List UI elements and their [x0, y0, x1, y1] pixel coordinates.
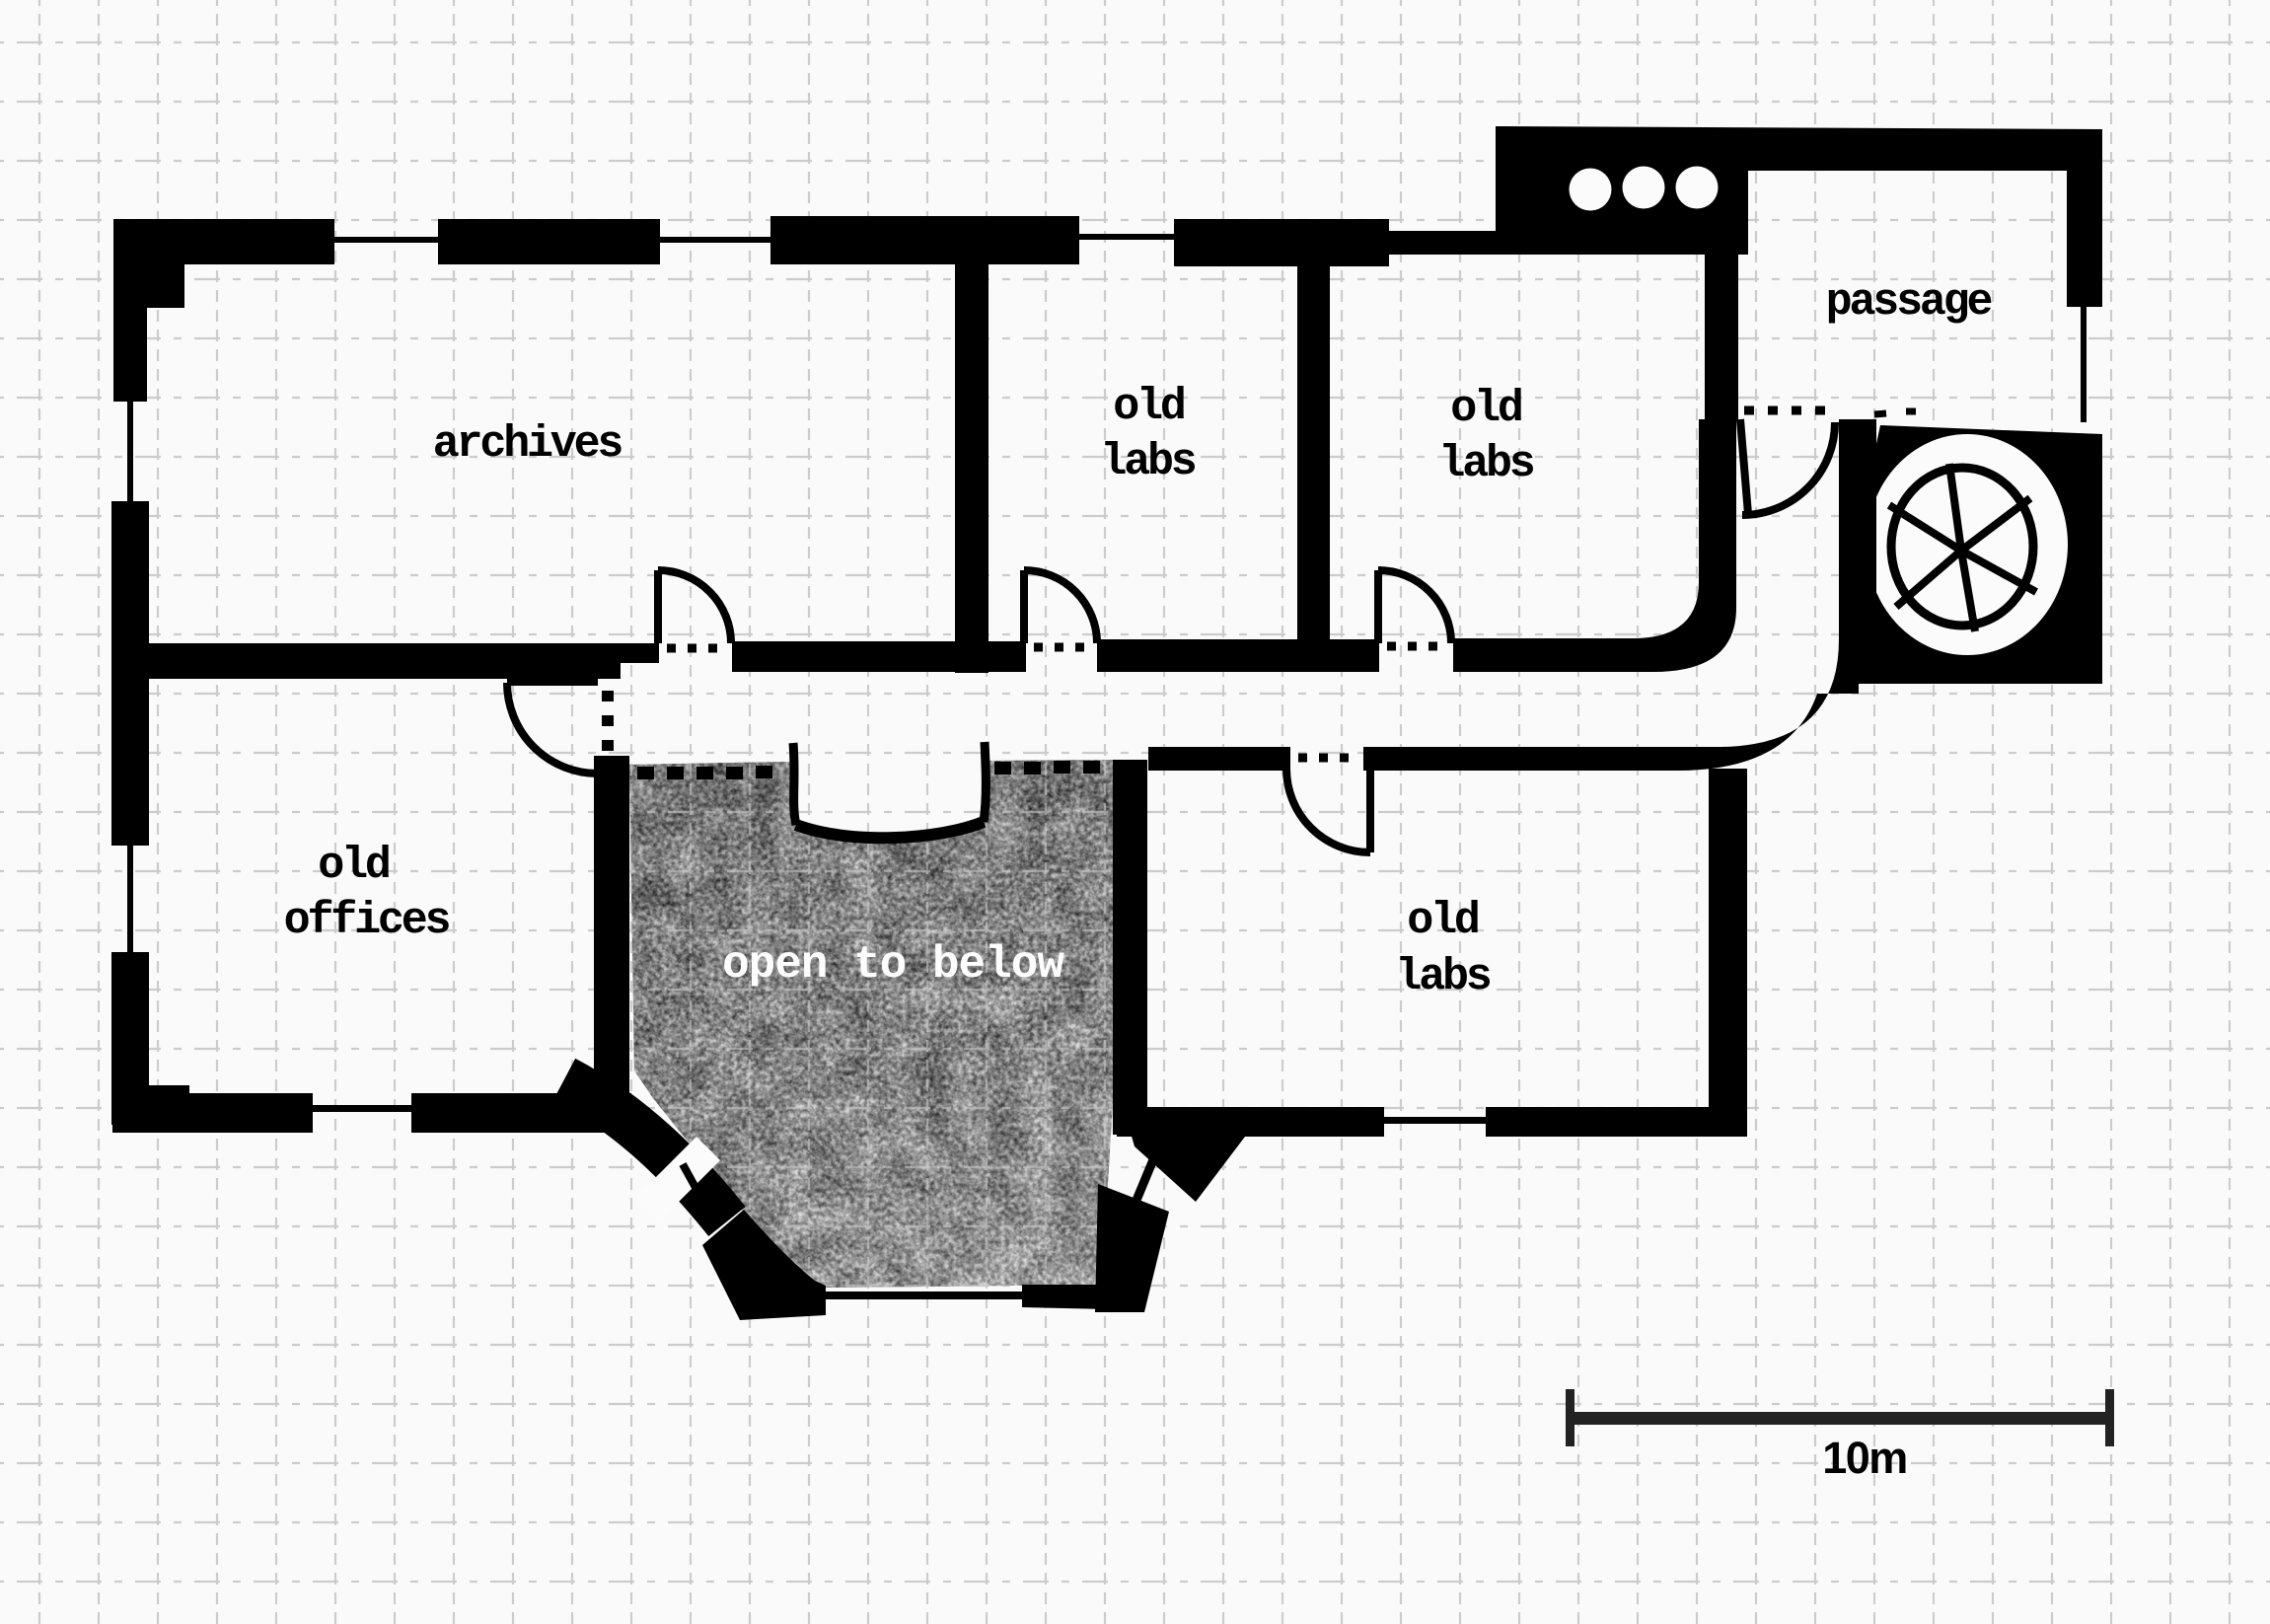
svg-text:old: old: [318, 841, 389, 891]
svg-text:archives: archives: [433, 419, 622, 470]
svg-text:old: old: [1450, 384, 1521, 434]
svg-text:old: old: [1407, 896, 1478, 946]
svg-text:open to below: open to below: [722, 939, 1064, 991]
svg-text:offices: offices: [284, 896, 450, 946]
svg-text:labs: labs: [1438, 439, 1533, 489]
svg-text:old: old: [1113, 382, 1184, 432]
svg-text:passage: passage: [1826, 277, 1992, 328]
svg-text:labs: labs: [1100, 437, 1195, 487]
svg-text:labs: labs: [1395, 952, 1490, 1002]
svg-text:10m: 10m: [1822, 1433, 1907, 1483]
